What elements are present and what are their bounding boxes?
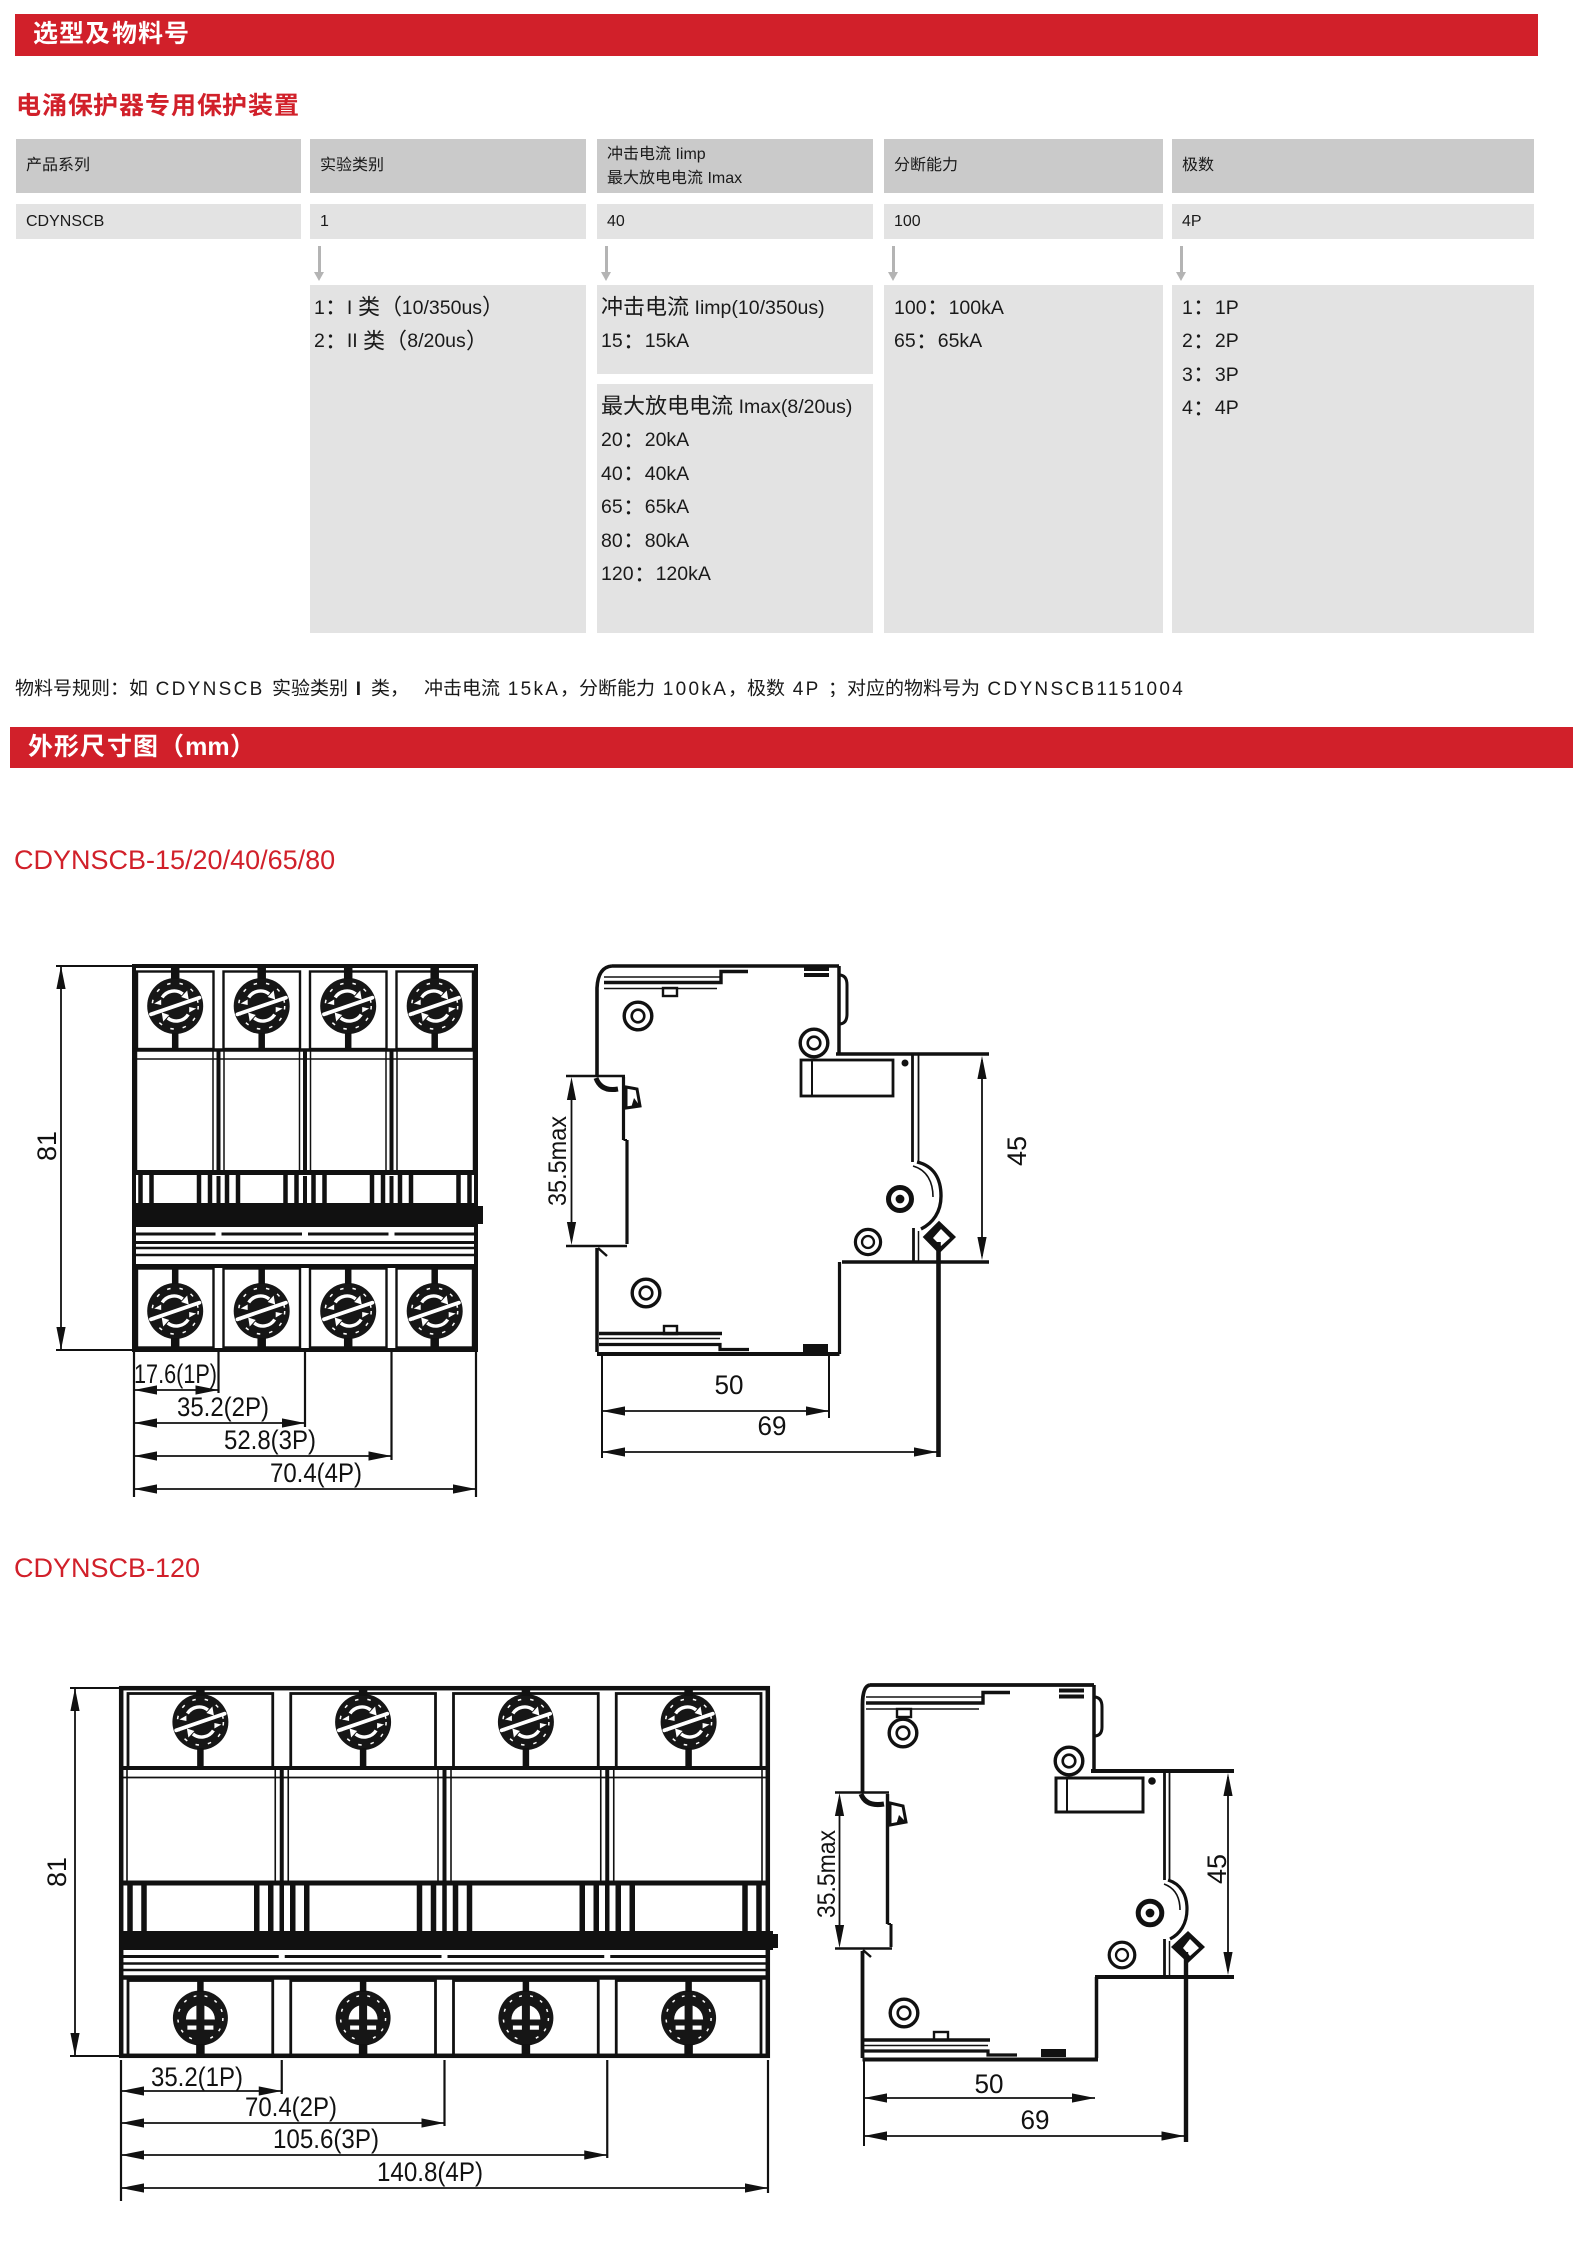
svg-text:17.6(1P): 17.6(1P) xyxy=(134,1359,217,1389)
svg-text:81: 81 xyxy=(32,1131,62,1161)
svg-text:105.6(3P): 105.6(3P) xyxy=(273,2124,379,2154)
svg-text:45: 45 xyxy=(1002,1136,1032,1166)
svg-text:35.2(1P): 35.2(1P) xyxy=(151,2062,243,2092)
svg-text:35.2(2P): 35.2(2P) xyxy=(177,1392,269,1422)
svg-text:70.4(2P): 70.4(2P) xyxy=(245,2092,337,2122)
svg-text:140.8(4P): 140.8(4P) xyxy=(377,2157,483,2187)
svg-text:52.8(3P): 52.8(3P) xyxy=(224,1425,316,1455)
svg-text:35.5max: 35.5max xyxy=(813,1830,841,1918)
svg-text:35.5max: 35.5max xyxy=(544,1116,572,1206)
svg-text:69: 69 xyxy=(1021,2105,1050,2135)
svg-text:81: 81 xyxy=(42,1857,72,1887)
svg-text:69: 69 xyxy=(758,1411,787,1441)
svg-text:70.4(4P): 70.4(4P) xyxy=(270,1458,362,1488)
svg-text:50: 50 xyxy=(715,1370,744,1400)
svg-text:50: 50 xyxy=(975,2069,1004,2099)
svg-text:45: 45 xyxy=(1202,1854,1232,1884)
